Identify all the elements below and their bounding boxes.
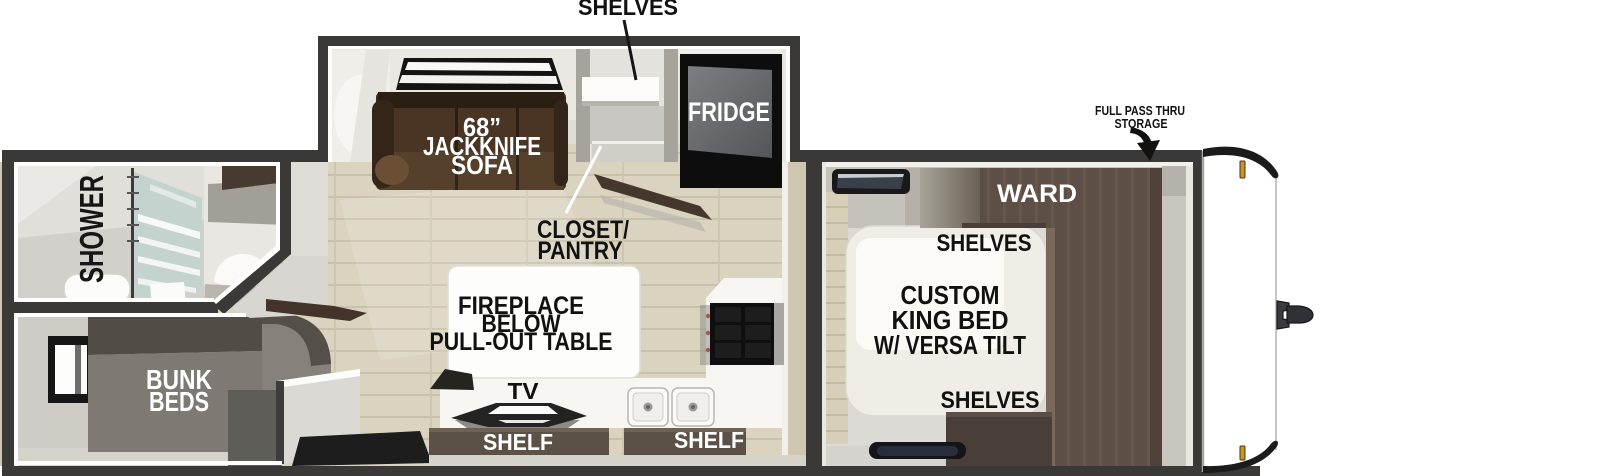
svg-text:PULL-OUT TABLE: PULL-OUT TABLE bbox=[430, 328, 613, 356]
svg-text:TV: TV bbox=[508, 378, 540, 404]
svg-text:SHELF: SHELF bbox=[483, 429, 553, 455]
svg-text:BEDS: BEDS bbox=[149, 386, 209, 417]
svg-text:SOFA: SOFA bbox=[451, 150, 513, 180]
svg-text:SHELVES: SHELVES bbox=[941, 387, 1040, 414]
svg-text:SHOWER: SHOWER bbox=[73, 175, 110, 283]
svg-text:WARD: WARD bbox=[997, 180, 1077, 208]
svg-text:FRIDGE: FRIDGE bbox=[688, 97, 770, 127]
svg-text:STORAGE: STORAGE bbox=[1115, 116, 1168, 131]
svg-text:SHELF: SHELF bbox=[674, 427, 744, 453]
svg-text:SHELVES: SHELVES bbox=[578, 0, 678, 20]
svg-text:W/ VERSA TILT: W/ VERSA TILT bbox=[874, 330, 1026, 360]
svg-text:PANTRY: PANTRY bbox=[538, 237, 623, 265]
svg-text:SHELVES: SHELVES bbox=[937, 230, 1032, 257]
